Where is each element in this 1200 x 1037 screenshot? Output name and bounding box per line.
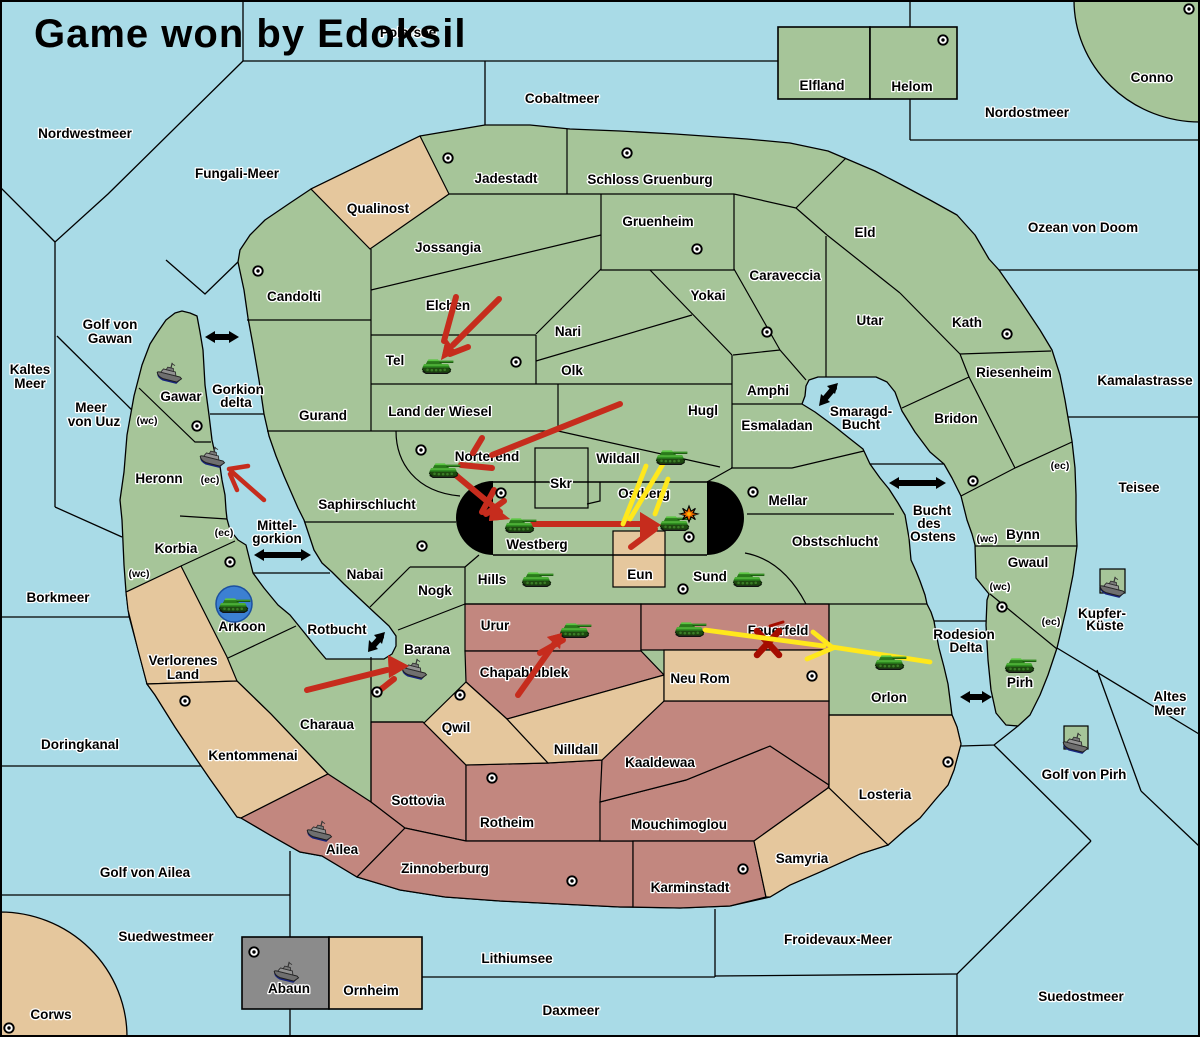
svg-text:Daxmeer: Daxmeer (542, 1003, 600, 1018)
svg-text:Amphi: Amphi (747, 383, 789, 398)
svg-text:Mellar: Mellar (768, 493, 808, 508)
svg-text:Sund: Sund (693, 569, 727, 584)
svg-text:Zinnoberburg: Zinnoberburg (401, 861, 489, 876)
svg-text:Hugl: Hugl (688, 403, 718, 418)
svg-text:gorkion: gorkion (252, 531, 302, 546)
svg-text:Suedwestmeer: Suedwestmeer (118, 929, 214, 944)
svg-text:Nordwestmeer: Nordwestmeer (38, 126, 133, 141)
svg-text:Doringkanal: Doringkanal (41, 737, 119, 752)
svg-text:Rotheim: Rotheim (480, 815, 534, 830)
svg-text:Caraveccia: Caraveccia (749, 268, 821, 283)
svg-text:(ec): (ec) (1051, 460, 1070, 472)
svg-text:Cobaltmeer: Cobaltmeer (525, 91, 600, 106)
svg-text:Nari: Nari (555, 324, 581, 339)
svg-text:Kaaldewaa: Kaaldewaa (625, 755, 695, 770)
svg-text:Froidevaux-Meer: Froidevaux-Meer (784, 932, 893, 947)
svg-text:Abaun: Abaun (268, 981, 310, 996)
svg-text:(ec): (ec) (201, 474, 220, 486)
svg-text:Qualinost: Qualinost (347, 201, 410, 216)
svg-text:Meer: Meer (14, 376, 46, 391)
svg-text:Nogk: Nogk (418, 583, 452, 598)
svg-text:Schloss Gruenburg: Schloss Gruenburg (587, 172, 712, 187)
svg-text:Gwaul: Gwaul (1008, 555, 1049, 570)
svg-text:Charaua: Charaua (300, 717, 355, 732)
svg-text:Golf von Ailea: Golf von Ailea (100, 865, 191, 880)
svg-text:Game won by Edoksil: Game won by Edoksil (34, 12, 466, 56)
svg-text:Sottovia: Sottovia (391, 793, 445, 808)
svg-text:Westberg: Westberg (506, 537, 567, 552)
svg-text:Land der Wiesel: Land der Wiesel (388, 404, 491, 419)
svg-text:Nilldall: Nilldall (554, 742, 598, 757)
svg-text:Pirh: Pirh (1007, 675, 1033, 690)
svg-text:Jadestadt: Jadestadt (474, 171, 538, 186)
svg-text:Ozean von Doom: Ozean von Doom (1028, 220, 1138, 235)
svg-text:Olk: Olk (561, 363, 583, 378)
svg-text:Suedostmeer: Suedostmeer (1038, 989, 1124, 1004)
svg-text:Bucht: Bucht (842, 417, 881, 432)
svg-text:Kath: Kath (952, 315, 982, 330)
svg-text:Yokai: Yokai (690, 288, 725, 303)
svg-text:Golf von Pirh: Golf von Pirh (1042, 767, 1127, 782)
svg-text:Losteria: Losteria (859, 787, 912, 802)
svg-text:Golf von: Golf von (83, 317, 138, 332)
svg-text:Rotbucht: Rotbucht (307, 622, 367, 637)
svg-text:Eun: Eun (627, 567, 653, 582)
svg-text:Saphirschlucht: Saphirschlucht (318, 497, 416, 512)
svg-text:Meer: Meer (1154, 703, 1186, 718)
svg-text:(ec): (ec) (215, 527, 234, 539)
svg-text:Bridon: Bridon (934, 411, 978, 426)
svg-text:Teisee: Teisee (1118, 480, 1160, 495)
svg-text:Borkmeer: Borkmeer (26, 590, 90, 605)
svg-text:Barana: Barana (404, 642, 450, 657)
svg-text:Verlorenes: Verlorenes (148, 653, 217, 668)
svg-text:Hills: Hills (478, 572, 507, 587)
svg-text:Kamalastrasse: Kamalastrasse (1097, 373, 1193, 388)
svg-text:Land: Land (167, 667, 199, 682)
svg-text:Altes: Altes (1153, 689, 1186, 704)
svg-text:Corws: Corws (30, 1007, 71, 1022)
svg-text:Conno: Conno (1131, 70, 1174, 85)
svg-text:Korbia: Korbia (155, 541, 198, 556)
svg-text:(wc): (wc) (129, 568, 150, 580)
svg-text:(wc): (wc) (137, 415, 158, 427)
svg-text:Tel: Tel (386, 353, 405, 368)
svg-text:Delta: Delta (949, 640, 983, 655)
svg-text:Mouchimoglou: Mouchimoglou (631, 817, 727, 832)
svg-text:Orlon: Orlon (871, 690, 907, 705)
svg-text:Karminstadt: Karminstadt (651, 880, 730, 895)
svg-text:Eld: Eld (854, 225, 875, 240)
svg-text:Gawar: Gawar (160, 389, 202, 404)
svg-text:Obstschlucht: Obstschlucht (792, 534, 879, 549)
svg-text:Gurand: Gurand (299, 408, 347, 423)
svg-text:Ailea: Ailea (326, 842, 359, 857)
svg-text:Chapablublek: Chapablublek (480, 665, 569, 680)
svg-text:Gawan: Gawan (88, 331, 132, 346)
svg-text:Nabai: Nabai (347, 567, 384, 582)
svg-text:Elchen: Elchen (426, 298, 470, 313)
svg-text:Ornheim: Ornheim (343, 983, 399, 998)
svg-text:Neu Rom: Neu Rom (670, 671, 729, 686)
svg-text:Bynn: Bynn (1006, 527, 1040, 542)
svg-text:Samyria: Samyria (776, 851, 829, 866)
svg-text:Kentommenai: Kentommenai (208, 748, 297, 763)
svg-text:Candolti: Candolti (267, 289, 321, 304)
svg-text:Heronn: Heronn (135, 471, 182, 486)
svg-text:Ostens: Ostens (910, 529, 956, 544)
svg-text:Riesenheim: Riesenheim (976, 365, 1052, 380)
svg-text:Norterend: Norterend (455, 449, 520, 464)
svg-text:Gruenheim: Gruenheim (622, 214, 693, 229)
svg-text:Elfland: Elfland (799, 78, 844, 93)
svg-text:Nordostmeer: Nordostmeer (985, 105, 1070, 120)
svg-text:Urur: Urur (481, 618, 510, 633)
svg-text:Kaltes: Kaltes (10, 362, 51, 377)
svg-text:von Uuz: von Uuz (68, 414, 121, 429)
svg-text:(wc): (wc) (990, 581, 1011, 593)
svg-text:Esmaladan: Esmaladan (741, 418, 812, 433)
svg-text:Helom: Helom (891, 79, 932, 94)
svg-text:Fungali-Meer: Fungali-Meer (195, 166, 280, 181)
svg-text:Utar: Utar (856, 313, 884, 328)
svg-text:Lithiumsee: Lithiumsee (481, 951, 553, 966)
svg-text:Meer: Meer (75, 400, 107, 415)
svg-text:Skr: Skr (550, 476, 573, 491)
svg-text:Qwil: Qwil (442, 720, 471, 735)
svg-text:Wildall: Wildall (596, 451, 639, 466)
svg-text:(wc): (wc) (977, 533, 998, 545)
svg-text:(ec): (ec) (1042, 616, 1061, 628)
svg-text:Jossangia: Jossangia (415, 240, 482, 255)
svg-text:Küste: Küste (1086, 618, 1124, 633)
svg-text:Arkoon: Arkoon (218, 619, 265, 634)
svg-text:delta: delta (220, 395, 252, 410)
